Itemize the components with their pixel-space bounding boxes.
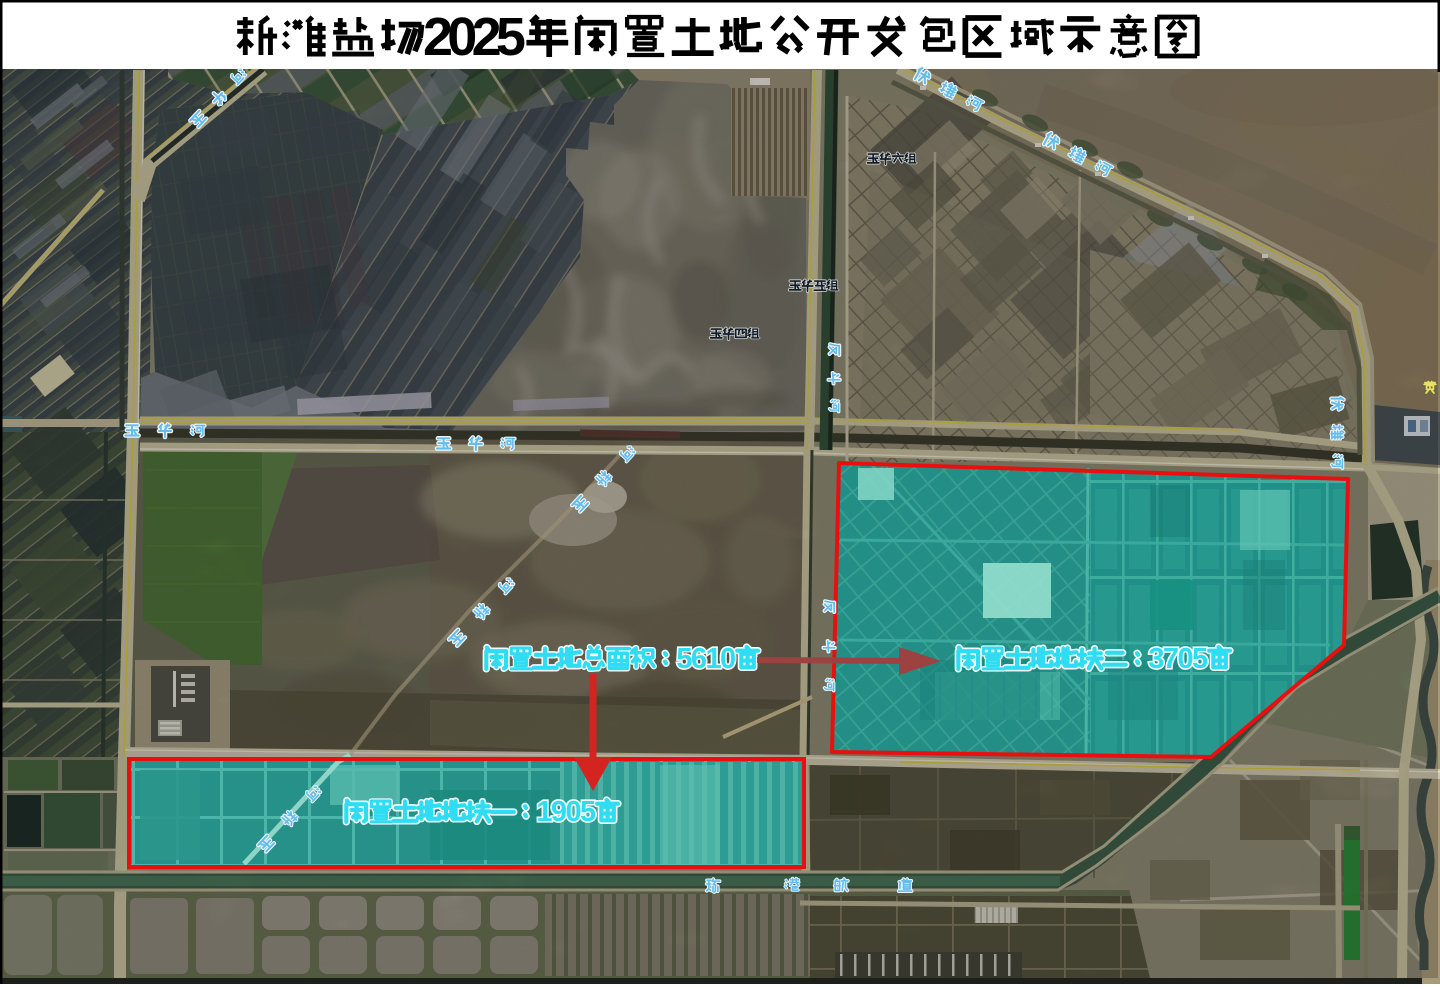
svg-text:5: 5 — [580, 796, 596, 828]
svg-text:0: 0 — [720, 643, 736, 675]
svg-text:5: 5 — [1192, 643, 1208, 675]
svg-text:5: 5 — [496, 7, 526, 67]
